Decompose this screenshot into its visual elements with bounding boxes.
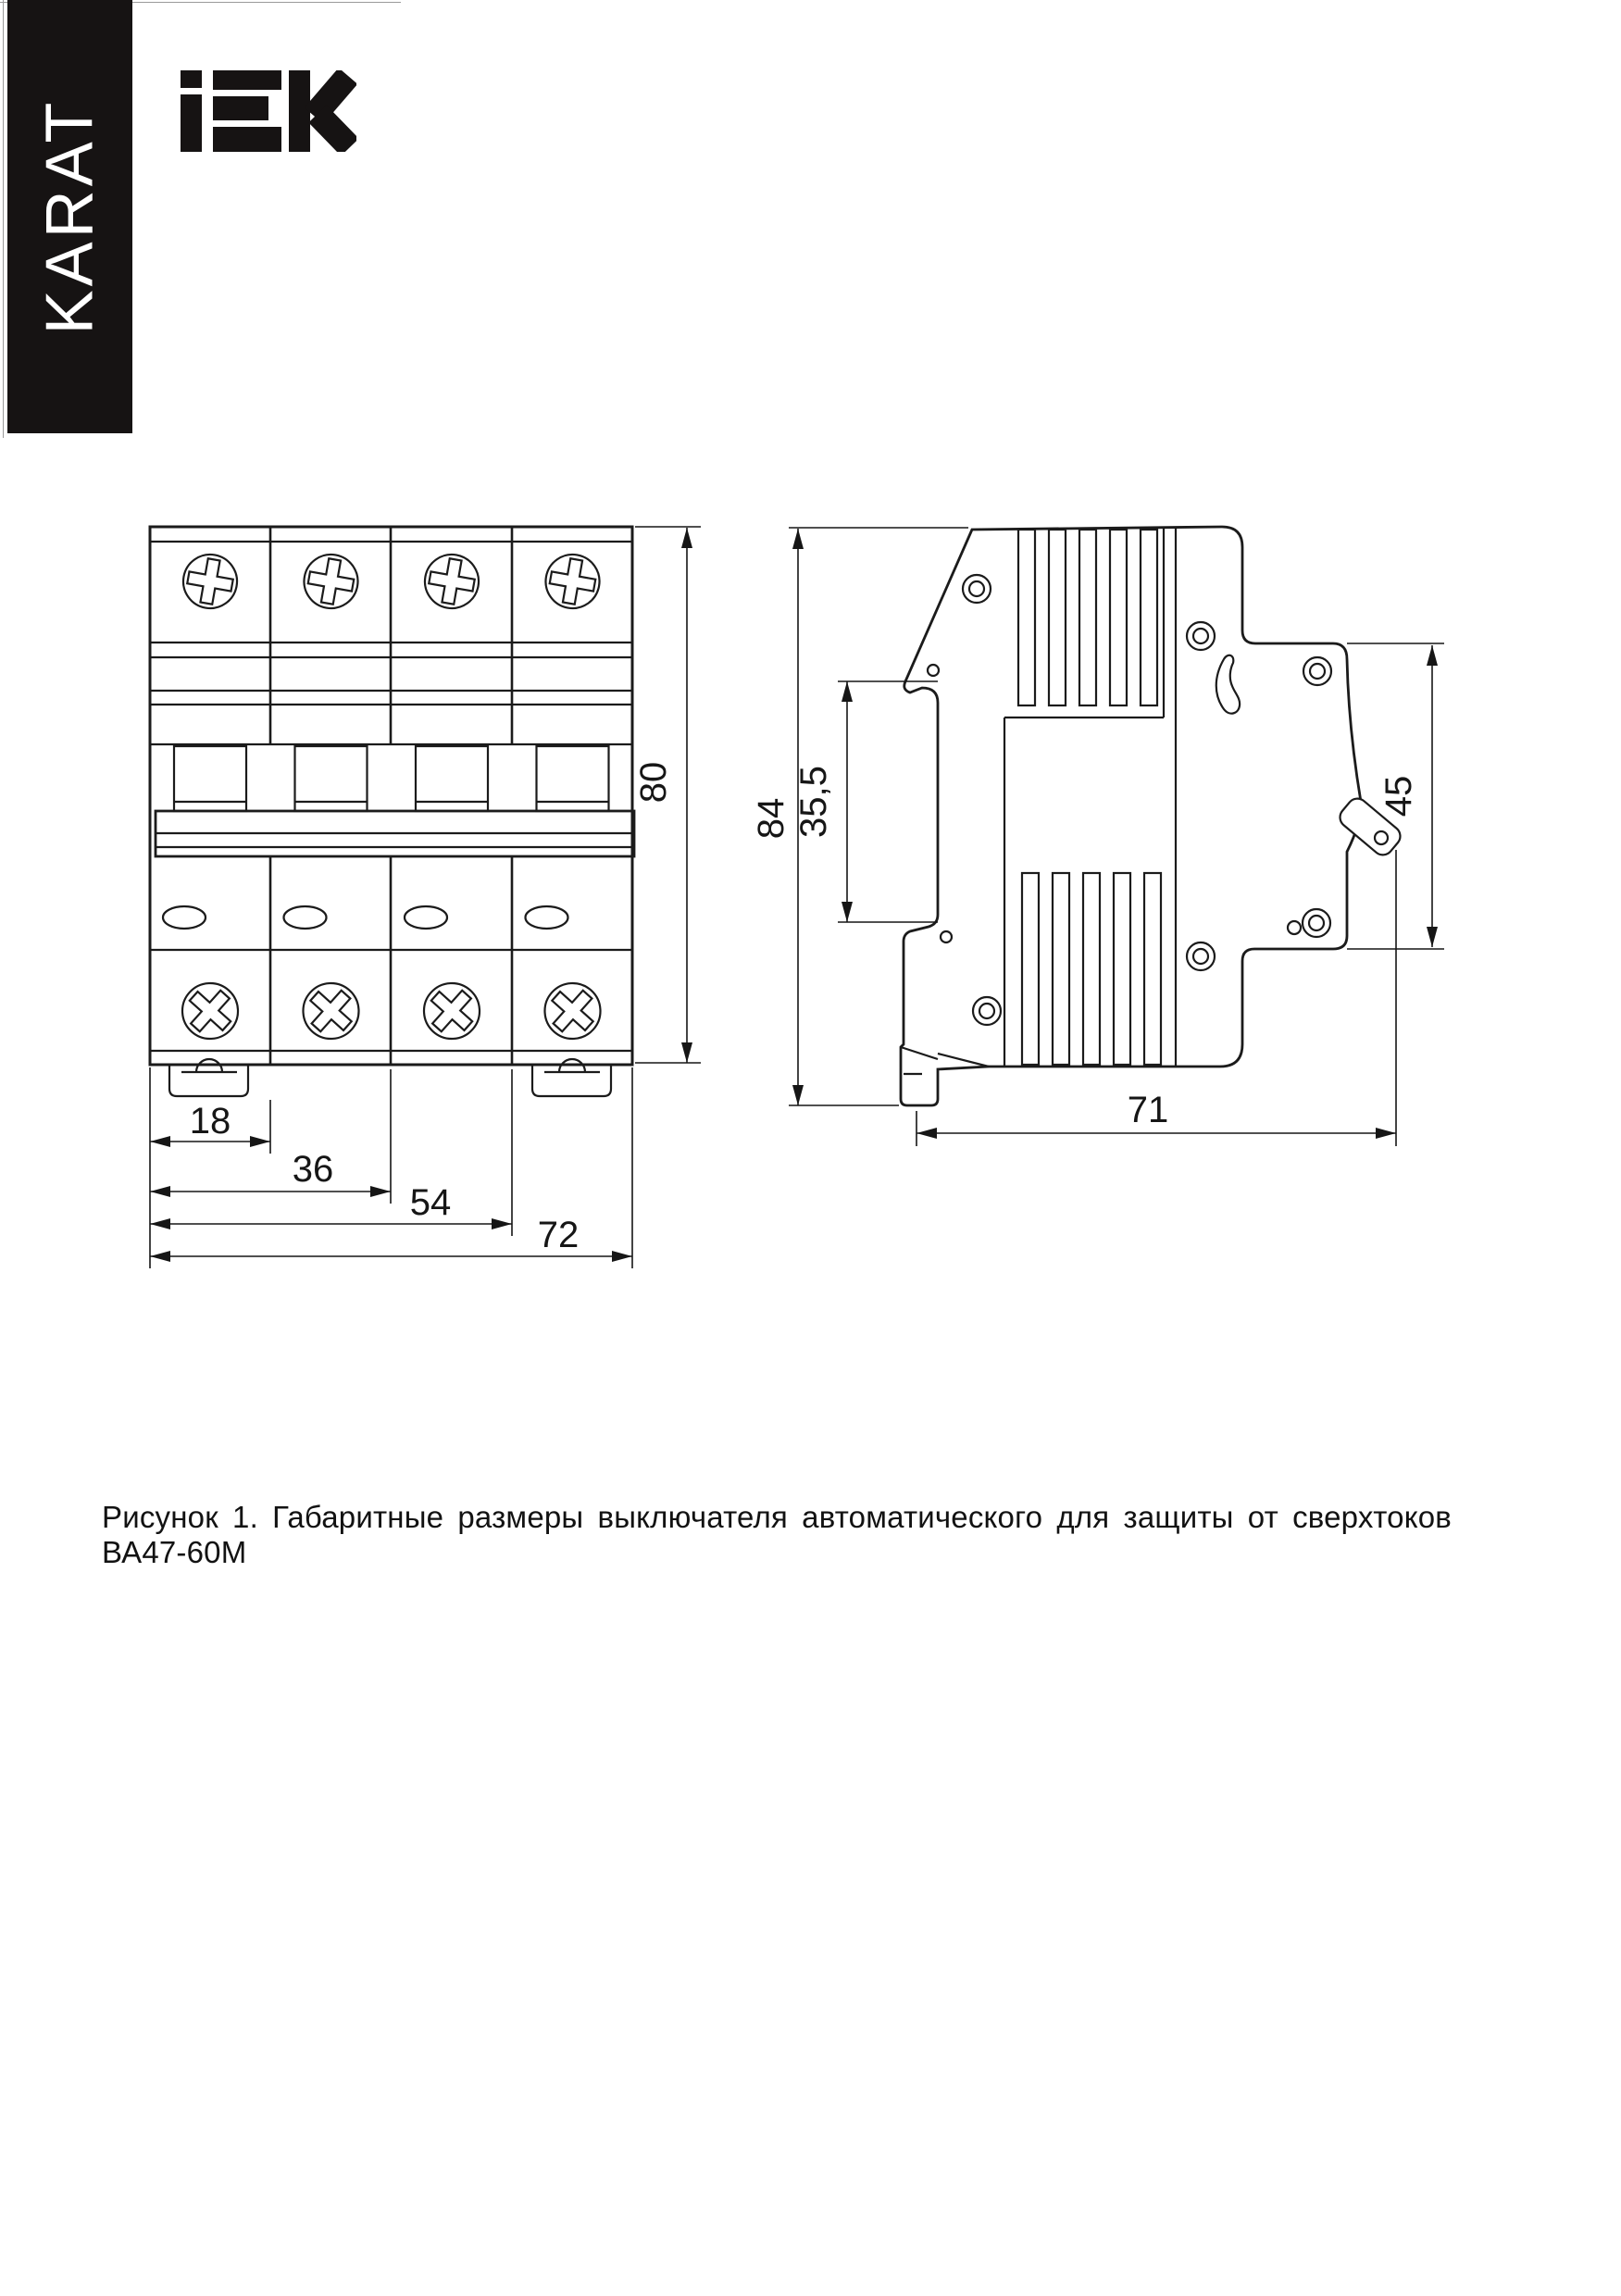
front-view bbox=[150, 527, 634, 1096]
dim-front-panel-height: 45 bbox=[1378, 776, 1419, 817]
toggle-handles bbox=[174, 746, 609, 811]
extension-lines bbox=[150, 527, 701, 1268]
dimension-drawing: 18 36 54 72 80 bbox=[0, 0, 1621, 2296]
dim-module-width: 18 bbox=[190, 1101, 231, 1142]
dim-two-modules: 36 bbox=[293, 1149, 334, 1190]
figure-caption: Рисунок 1. Габаритные размеры выключател… bbox=[102, 1500, 1452, 1570]
dim-front-height: 80 bbox=[633, 762, 674, 804]
label-strip bbox=[156, 811, 634, 856]
dim-total-height: 84 bbox=[751, 798, 792, 840]
front-view-dimensions: 18 36 54 72 80 bbox=[150, 527, 701, 1268]
pole-dividers bbox=[270, 527, 512, 1065]
dim-din-recess: 35,5 bbox=[793, 766, 834, 838]
dim-depth: 71 bbox=[1128, 1090, 1169, 1130]
catalog-page: KARAT bbox=[0, 0, 1621, 2296]
dim-total-width: 72 bbox=[538, 1215, 580, 1255]
dim-three-modules: 54 bbox=[410, 1182, 452, 1223]
side-view bbox=[901, 527, 1404, 1105]
marking-window-ovals bbox=[163, 906, 568, 929]
